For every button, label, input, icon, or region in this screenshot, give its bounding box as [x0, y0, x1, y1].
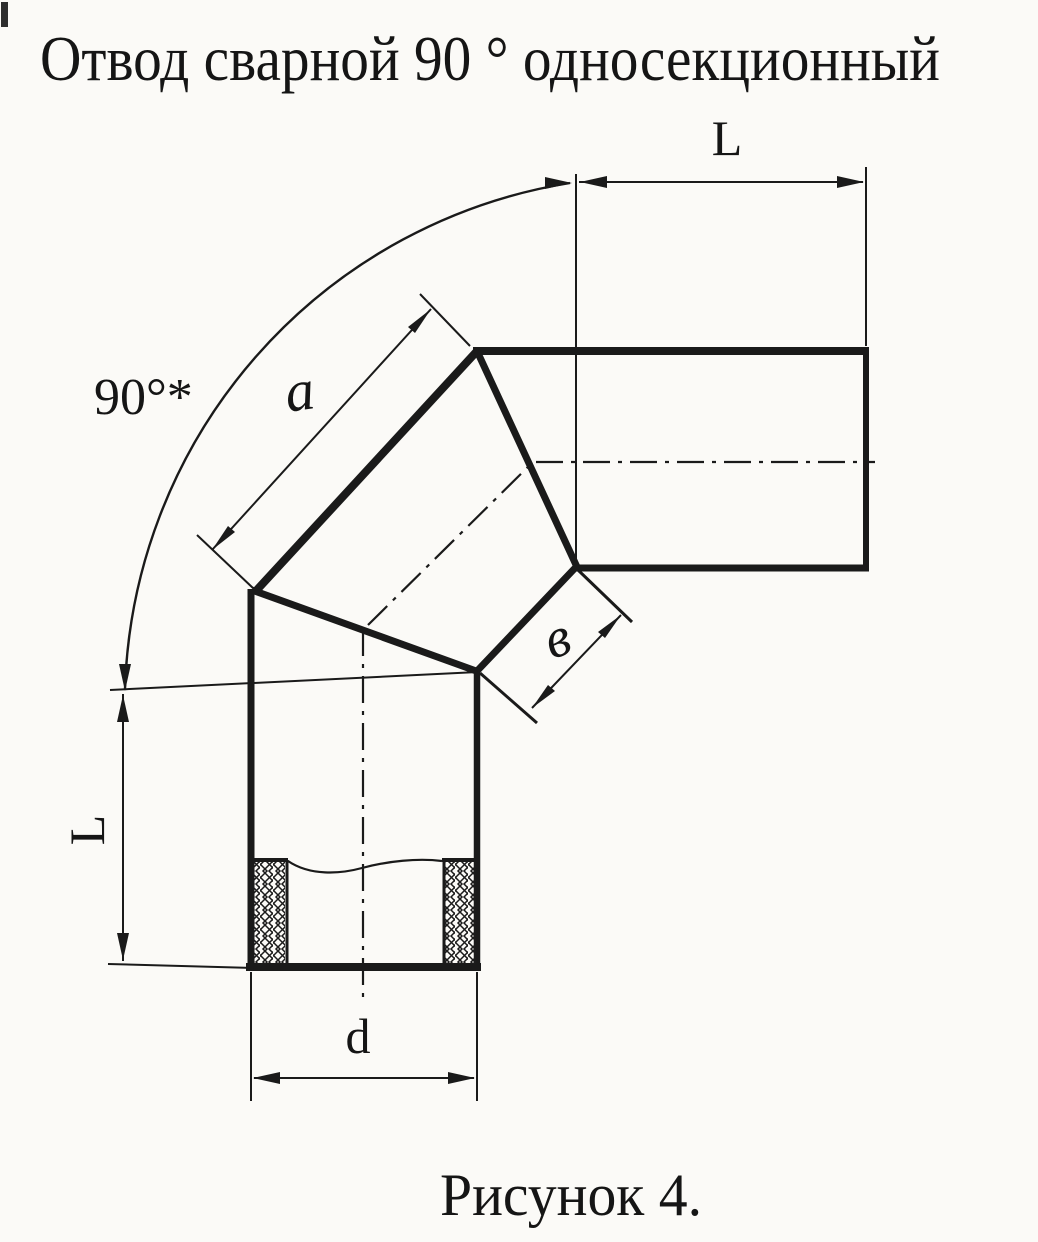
centerlines [363, 461, 875, 997]
ext-line-bottom [197, 535, 254, 589]
dim-l-left-label: L [59, 815, 115, 846]
ext-line-top [110, 672, 478, 690]
dim-a-label: a [280, 356, 318, 424]
dim-arrow-bottom [212, 526, 235, 550]
arc-arrow-top [545, 177, 572, 189]
scan-edge-artifact [1, 2, 8, 27]
angle-arc [125, 183, 570, 689]
dim-d-label: d [346, 1008, 371, 1064]
break-wavy-line [288, 860, 442, 873]
horizontal-pipe [473, 349, 869, 570]
dimension-l-top: L [576, 110, 866, 566]
dim-arrow-left [580, 176, 607, 188]
weld-seam-upper [477, 351, 577, 567]
drawing-title: Отвод сварной 90 ° односекционный [40, 23, 940, 94]
dim-l-top-label: L [712, 110, 743, 166]
hatch-left-wall [254, 861, 285, 964]
weld-seam-lower [252, 590, 479, 672]
scanned-drawing-page: Отвод сварной 90 ° односекционный [0, 0, 1038, 1242]
elbow-technical-drawing: Отвод сварной 90 ° односекционный [0, 0, 1038, 1242]
hatch-right-wall [445, 861, 476, 964]
miter-axis-centerline [368, 461, 534, 625]
angle-label: 90°* [94, 369, 193, 426]
ext-line-lower [480, 673, 537, 723]
dim-arrow-bottom [117, 933, 129, 960]
figure-caption: Рисунок 4. [440, 1162, 702, 1228]
dim-b-label: в [536, 605, 578, 671]
ext-line-bottom [108, 964, 254, 968]
ext-line-top [420, 294, 470, 346]
dim-arrow-top [117, 695, 129, 722]
dim-arrow-right [837, 176, 864, 188]
dimension-a: a [197, 294, 470, 589]
dim-arrow-left [253, 1072, 280, 1084]
wall-section-cutout [249, 860, 480, 966]
dimension-d: d [251, 972, 477, 1101]
dim-arrow-lower [532, 685, 555, 708]
dim-line [212, 309, 431, 550]
dim-arrow-top [408, 309, 431, 333]
angle-dimension: 90°* [94, 177, 572, 691]
dim-arrow-right [448, 1072, 475, 1084]
dim-arrow-upper [598, 615, 621, 638]
ext-line-upper [578, 570, 632, 622]
arc-arrow-bottom [119, 664, 131, 691]
